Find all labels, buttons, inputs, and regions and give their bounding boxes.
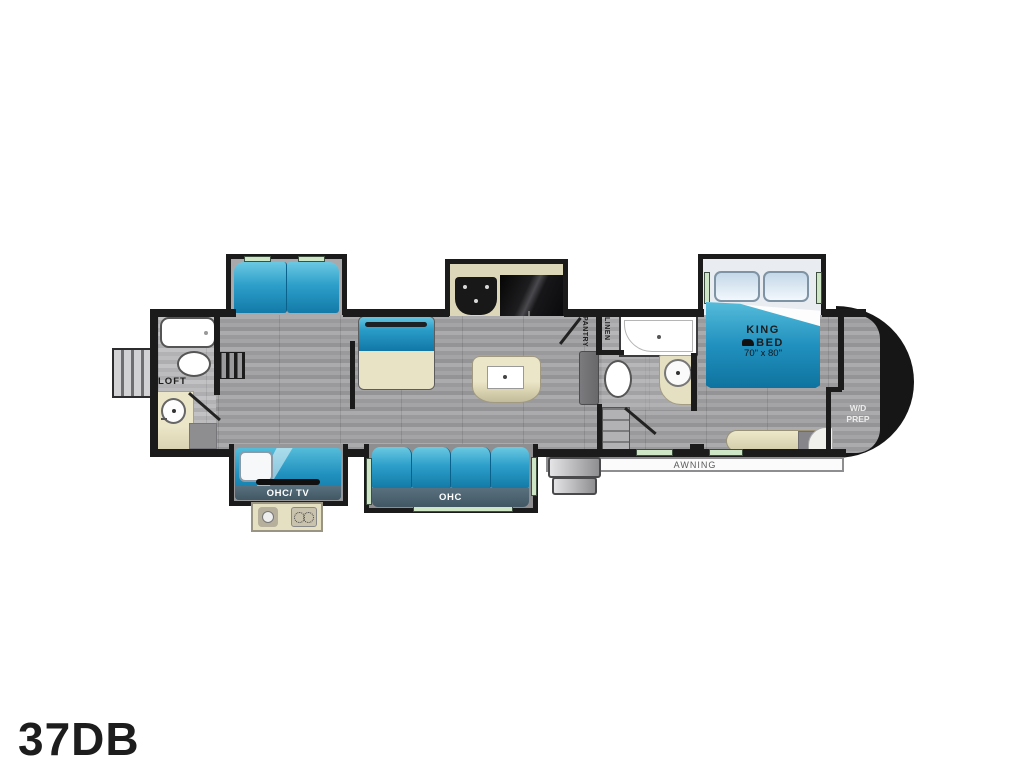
window: [816, 272, 822, 304]
bed-logo-icon: [742, 339, 754, 346]
burner-dot: [463, 285, 467, 289]
wall: [822, 309, 866, 317]
island-sink: [487, 366, 524, 389]
wd-prep-line2: PREP: [839, 414, 877, 425]
king-pillow: [763, 271, 809, 302]
sofa: OHC: [372, 447, 529, 507]
floorplan-canvas: KING BED 70" x 80" LOFT PANTRY LINEN: [0, 0, 1024, 768]
sofa-cushion: [451, 447, 491, 488]
sofa-cushion: [491, 447, 530, 488]
fridge-handle: [528, 311, 530, 316]
window: [531, 457, 537, 496]
wall: [150, 449, 236, 457]
sink-drain: [172, 409, 176, 413]
outdoor-sink-icon: [258, 507, 278, 527]
sofa-cushion: [287, 262, 339, 313]
ohc-label: OHC: [439, 492, 462, 503]
wd-closet-wall: [826, 390, 831, 453]
shower-pan: [189, 423, 217, 449]
den-bed: [358, 316, 435, 390]
entry-door-bracket: [690, 444, 704, 455]
window: [709, 449, 743, 456]
linen-wall: [600, 350, 624, 355]
island-faucet: [503, 375, 507, 379]
vanity-sink: [664, 359, 692, 387]
cooktop-stove: [455, 277, 497, 315]
hall-wall: [597, 404, 602, 453]
pantry-wall: [596, 311, 602, 355]
tv-bar: [256, 479, 320, 485]
sofa-cushion: [234, 262, 287, 313]
bathtub: [160, 317, 216, 348]
den-sofa-bed: OHC/ TV: [235, 448, 341, 500]
den-bed-headboard-bar: [365, 322, 427, 327]
counter-cabinet: [579, 351, 599, 405]
den-partition-wall: [350, 341, 355, 409]
awning-label: AWNING: [674, 460, 717, 470]
loveseat-sofa: [234, 262, 339, 313]
window: [636, 449, 673, 456]
shower-drain: [657, 335, 661, 339]
bath-bedroom-wall: [691, 353, 697, 411]
pantry-label: PANTRY: [581, 316, 588, 354]
king-bed-label: KING BED 70" x 80": [706, 324, 820, 360]
ohc-tv-label: OHC/ TV: [267, 488, 310, 499]
window: [704, 272, 710, 304]
ohc-band: OHC: [372, 488, 529, 507]
outdoor-kitchen: [251, 502, 323, 532]
wall: [150, 309, 236, 317]
wd-closet-wall: [838, 311, 844, 390]
wall: [150, 309, 158, 457]
bed-pillow: [239, 451, 273, 482]
den-bed-head: [359, 317, 434, 351]
wd-prep-label: W/D PREP: [839, 403, 877, 424]
entry-step: [548, 457, 601, 478]
wall: [343, 309, 449, 317]
outdoor-cooktop-icon: [291, 507, 317, 527]
floorplan-model-label: 37DB: [18, 712, 140, 766]
wall: [564, 309, 704, 317]
tub-drain: [204, 331, 208, 335]
burner-dot: [485, 285, 489, 289]
hall-steps: [602, 407, 630, 453]
refrigerator: [500, 275, 563, 316]
king-bed-line1: KING: [706, 324, 820, 337]
toilet: [604, 360, 632, 398]
wd-prep-line1: W/D: [839, 403, 877, 414]
loft-label: LOFT: [158, 376, 187, 387]
den-bed-foot: [359, 351, 434, 390]
sofa-cushion: [372, 447, 412, 488]
shower: [619, 315, 698, 357]
kitchen-island: [472, 356, 541, 403]
toilet: [177, 351, 211, 377]
loft-stairs: [217, 352, 245, 379]
bath-sink: [161, 398, 186, 424]
faucet-icon: [161, 418, 167, 420]
burner-dot: [474, 299, 478, 303]
king-pillow: [714, 271, 760, 302]
entry-step: [552, 477, 597, 495]
sink-drain: [676, 371, 680, 375]
sofa-cushion: [412, 447, 452, 488]
king-bed-size: 70" x 80": [706, 349, 820, 360]
ohc-tv-band: OHC/ TV: [235, 486, 341, 500]
linen-label: LINEN: [603, 317, 610, 353]
bath-partition-wall: [214, 309, 220, 395]
rear-steps: [112, 348, 152, 398]
